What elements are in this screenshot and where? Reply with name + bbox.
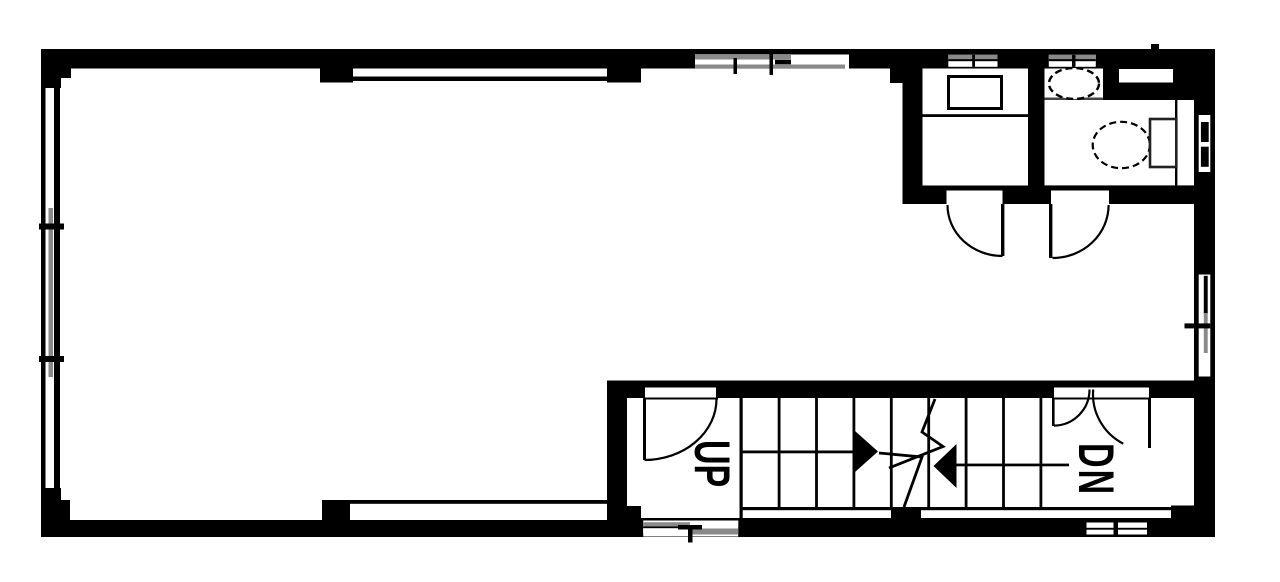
svg-text:DN: DN — [1067, 443, 1123, 496]
svg-text:UP: UP — [683, 440, 739, 487]
